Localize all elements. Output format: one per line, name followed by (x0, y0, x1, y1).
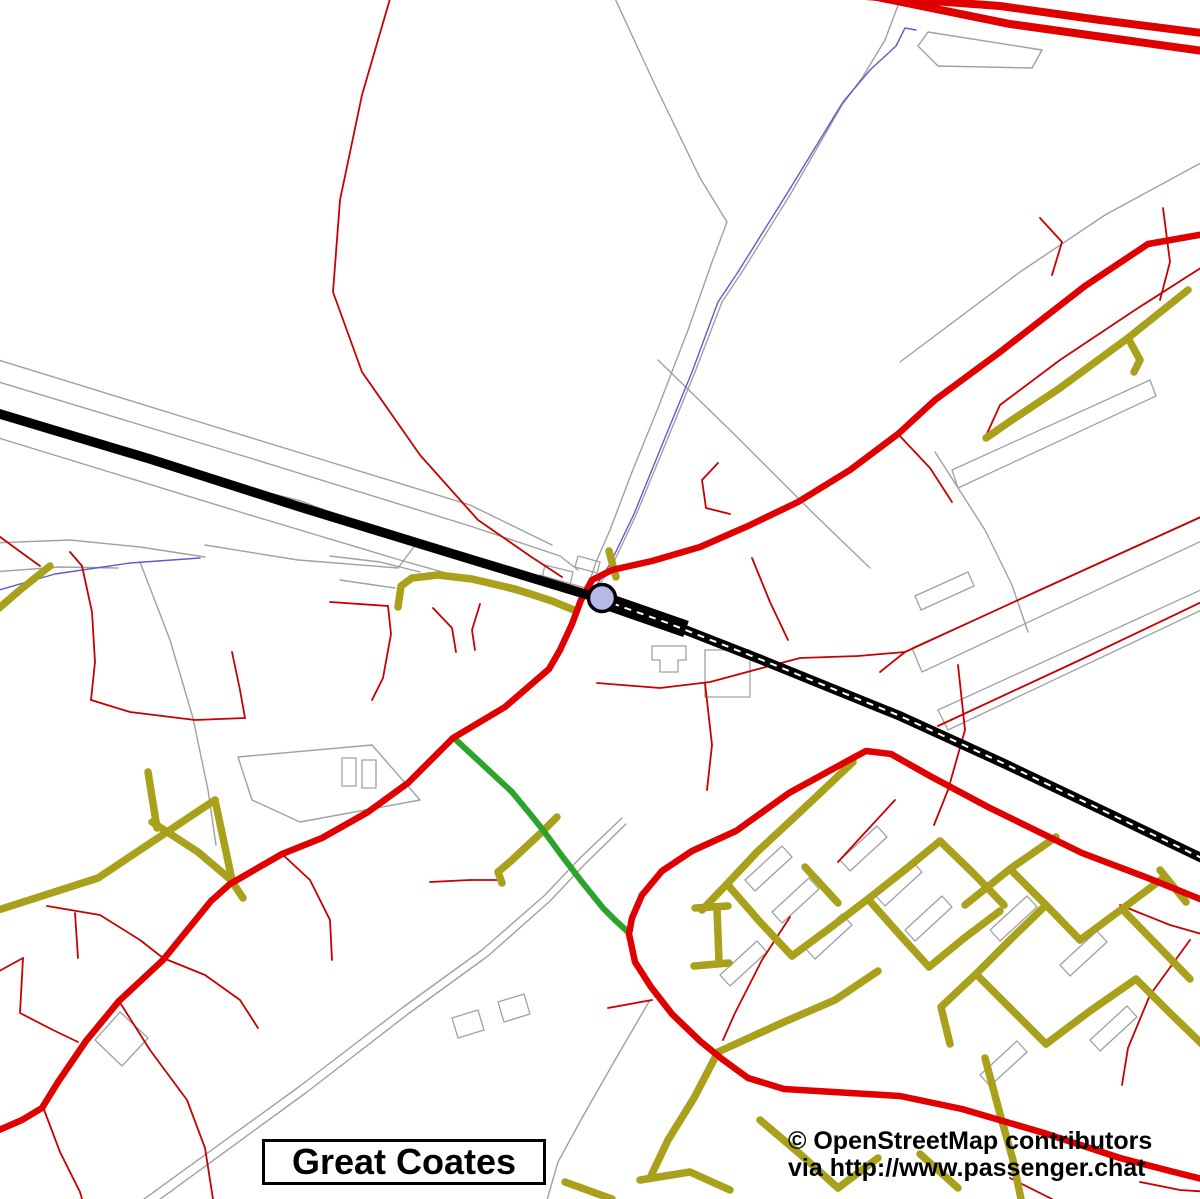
map-viewport: Great Coates © OpenStreetMap contributor… (0, 0, 1200, 1199)
stream-line (598, 28, 916, 583)
minor-road (0, 531, 40, 566)
place-label: Great Coates (292, 1141, 516, 1183)
building-outline (362, 760, 376, 788)
residential-road (1046, 979, 1136, 1044)
minor-road (75, 913, 78, 958)
residential-road (1128, 338, 1140, 372)
minor-road (1140, 1182, 1200, 1192)
boundary-line (547, 1000, 650, 1199)
residential-road (868, 899, 929, 967)
minor-road (91, 700, 245, 720)
building-outline (452, 1010, 484, 1038)
minor-road (898, 434, 952, 502)
water-layer (0, 28, 916, 592)
stream-line (0, 558, 200, 592)
map-canvas (0, 0, 1200, 1199)
building-outline (772, 878, 819, 923)
minor-road (282, 854, 332, 960)
railway-layer (0, 411, 1200, 863)
residential-road (1136, 979, 1200, 1044)
boundary-line (0, 358, 552, 545)
residential-road (717, 908, 719, 962)
residential-road (976, 974, 1046, 1044)
minor-road (47, 906, 163, 958)
residential-road (976, 905, 1046, 974)
minor-road (985, 262, 1200, 438)
minor-road (705, 683, 712, 790)
boundary-line (658, 360, 870, 568)
trunk-road-layer (838, 0, 1200, 52)
minor-road (163, 958, 258, 1028)
building-outline (498, 994, 530, 1022)
building-outline (840, 826, 887, 871)
minor-road (880, 652, 905, 672)
residential-road (695, 906, 728, 908)
minor-road (333, 0, 562, 577)
boundary-line (340, 580, 395, 588)
minor-road (70, 552, 95, 700)
residential-road (986, 290, 1188, 438)
primary-road-layer (0, 233, 1200, 1181)
minor-road (938, 598, 1200, 726)
boundary-line (238, 745, 420, 822)
residential-road (0, 800, 215, 912)
minor-road (0, 958, 23, 975)
residential-road (0, 566, 50, 614)
residential-road (694, 963, 729, 966)
residential-road (498, 817, 557, 883)
boundary-line (0, 540, 205, 557)
minor-road (430, 880, 500, 882)
minor-road (752, 558, 788, 640)
minor-road (232, 652, 245, 718)
station-marker (589, 585, 616, 612)
residential-road-layer (0, 290, 1200, 1199)
railway-line (0, 411, 1200, 863)
boundary-line (590, 0, 727, 580)
attribution-line-1: © OpenStreetMap contributors (788, 1128, 1198, 1155)
boundary-line (918, 32, 1042, 68)
residential-road (640, 1172, 730, 1190)
boundary-line (601, 0, 903, 582)
minor-road (433, 608, 456, 652)
building-outline (905, 896, 952, 941)
minor-road (372, 606, 391, 700)
railway-dash-line (600, 599, 1200, 863)
place-label-box: Great Coates (262, 1139, 546, 1185)
map-attribution: © OpenStreetMap contributors via http://… (788, 1128, 1198, 1182)
minor-road (330, 602, 388, 606)
residential-road (727, 884, 792, 956)
residential-road (941, 974, 976, 1044)
building-outline (915, 572, 974, 610)
building-outline (575, 556, 600, 573)
attribution-line-2: via http://www.passenger.chat (788, 1155, 1198, 1182)
residential-road (565, 1182, 612, 1199)
minor-road (119, 1001, 213, 1199)
minor-road (20, 958, 78, 1042)
residential-road (835, 971, 878, 1000)
boundary-line (900, 158, 1200, 362)
building-outline (652, 646, 686, 672)
minor-road (702, 463, 730, 514)
building-outline (342, 758, 356, 786)
minor-road (43, 1107, 82, 1199)
minor-road (472, 604, 480, 650)
minor-road (838, 800, 895, 862)
boundary-line (935, 452, 1028, 632)
minor-road (1160, 208, 1170, 300)
